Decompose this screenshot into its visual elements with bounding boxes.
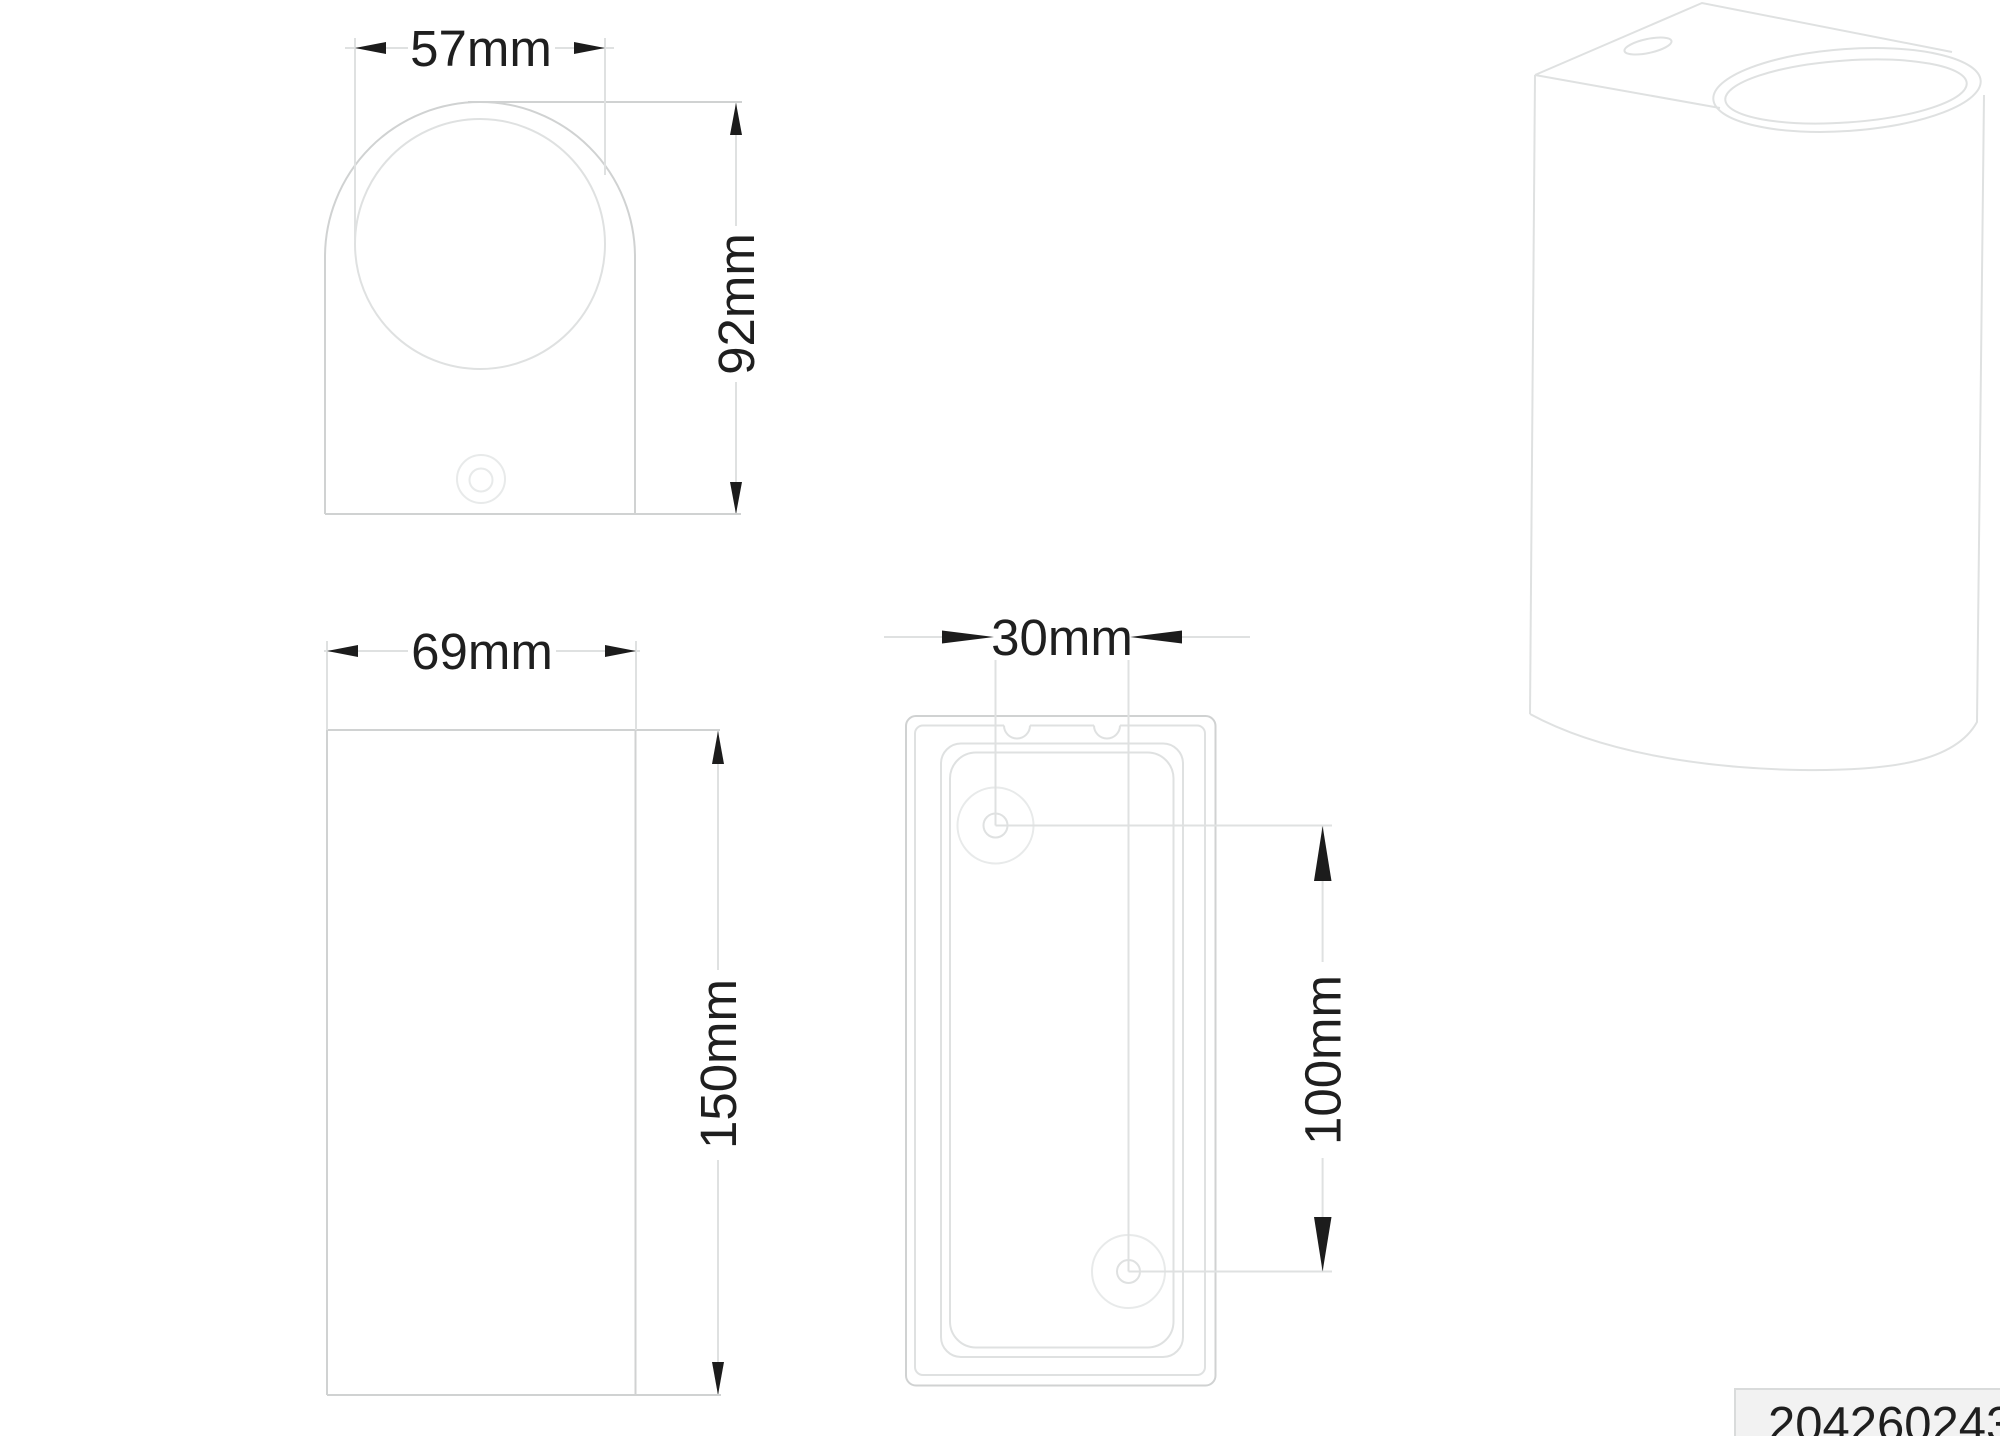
- svg-text:92mm: 92mm: [708, 233, 765, 375]
- svg-text:204260243: 204260243: [1768, 1398, 2000, 1436]
- svg-text:150mm: 150mm: [690, 979, 747, 1149]
- svg-text:57mm: 57mm: [410, 20, 552, 77]
- svg-text:100mm: 100mm: [1295, 975, 1352, 1145]
- svg-text:30mm: 30mm: [991, 609, 1133, 666]
- svg-text:69mm: 69mm: [411, 623, 553, 680]
